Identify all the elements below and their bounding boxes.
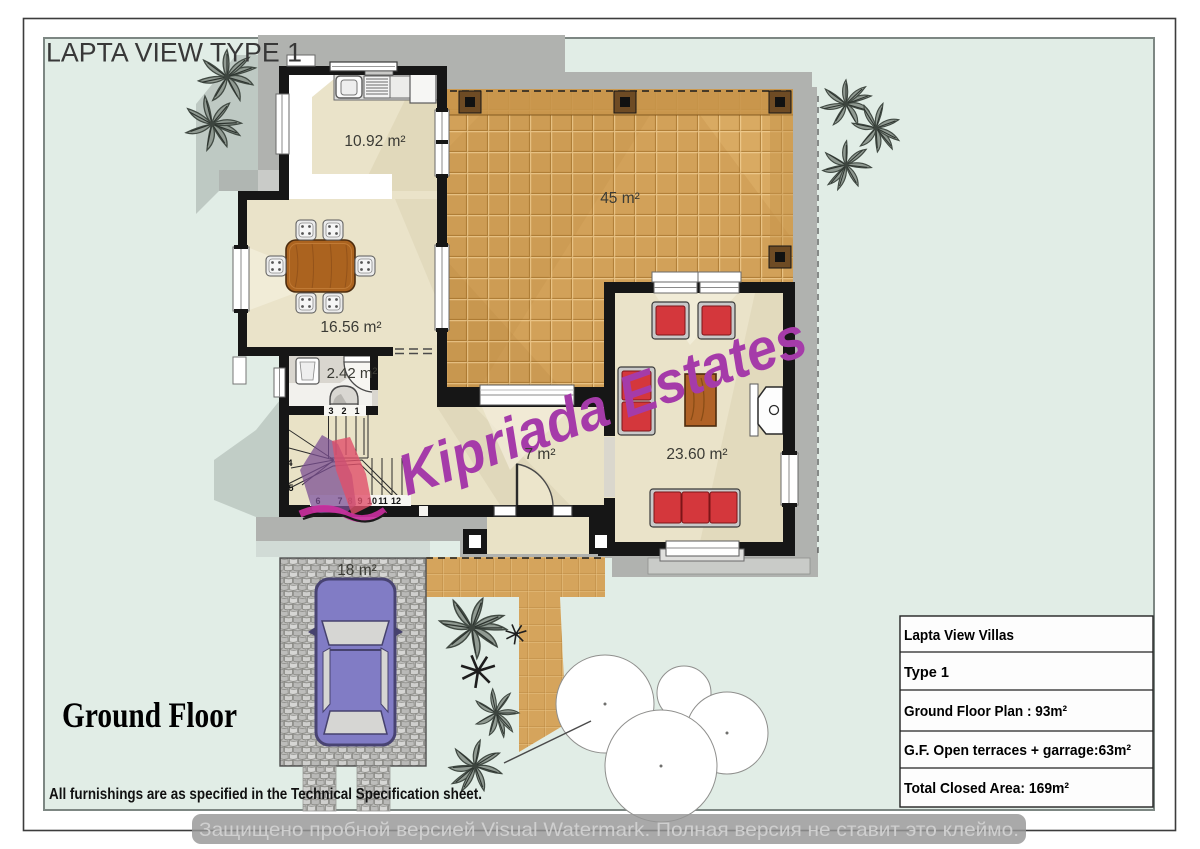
svg-text:Ground Floor Plan : 93m²: Ground Floor Plan : 93m² [904,703,1067,720]
svg-text:12: 12 [391,496,401,506]
svg-text:3: 3 [328,406,333,416]
svg-text:Type 1: Type 1 [904,664,949,681]
svg-text:45 m²: 45 m² [600,190,640,207]
svg-text:Защищено пробной версией Visua: Защищено пробной версией Visual Watermar… [199,819,1019,841]
svg-text:2: 2 [341,406,346,416]
svg-text:1: 1 [354,406,359,416]
svg-text:5: 5 [288,483,293,493]
svg-text:16.56 m²: 16.56 m² [320,319,381,336]
svg-text:Lapta View Villas: Lapta View Villas [904,627,1014,644]
svg-text:11: 11 [378,496,388,506]
svg-text:10.92 m²: 10.92 m² [344,133,405,150]
svg-text:G.F. Open terraces + garrage:6: G.F. Open terraces + garrage:63m² [904,742,1131,759]
svg-text:4: 4 [287,458,292,468]
svg-text:23.60 m²: 23.60 m² [666,446,727,463]
svg-text:18 m²: 18 m² [337,562,377,579]
svg-text:2.42 m²: 2.42 m² [327,365,378,382]
svg-text:LAPTA VIEW TYPE 1: LAPTA VIEW TYPE 1 [46,38,302,68]
svg-text:7 m²: 7 m² [525,446,556,463]
svg-text:Total Closed Area: 169m²: Total Closed Area: 169m² [904,780,1069,797]
svg-text:All furnishings are as specifi: All furnishings are as specified in the … [49,786,482,803]
svg-text:Ground Floor: Ground Floor [62,695,237,735]
